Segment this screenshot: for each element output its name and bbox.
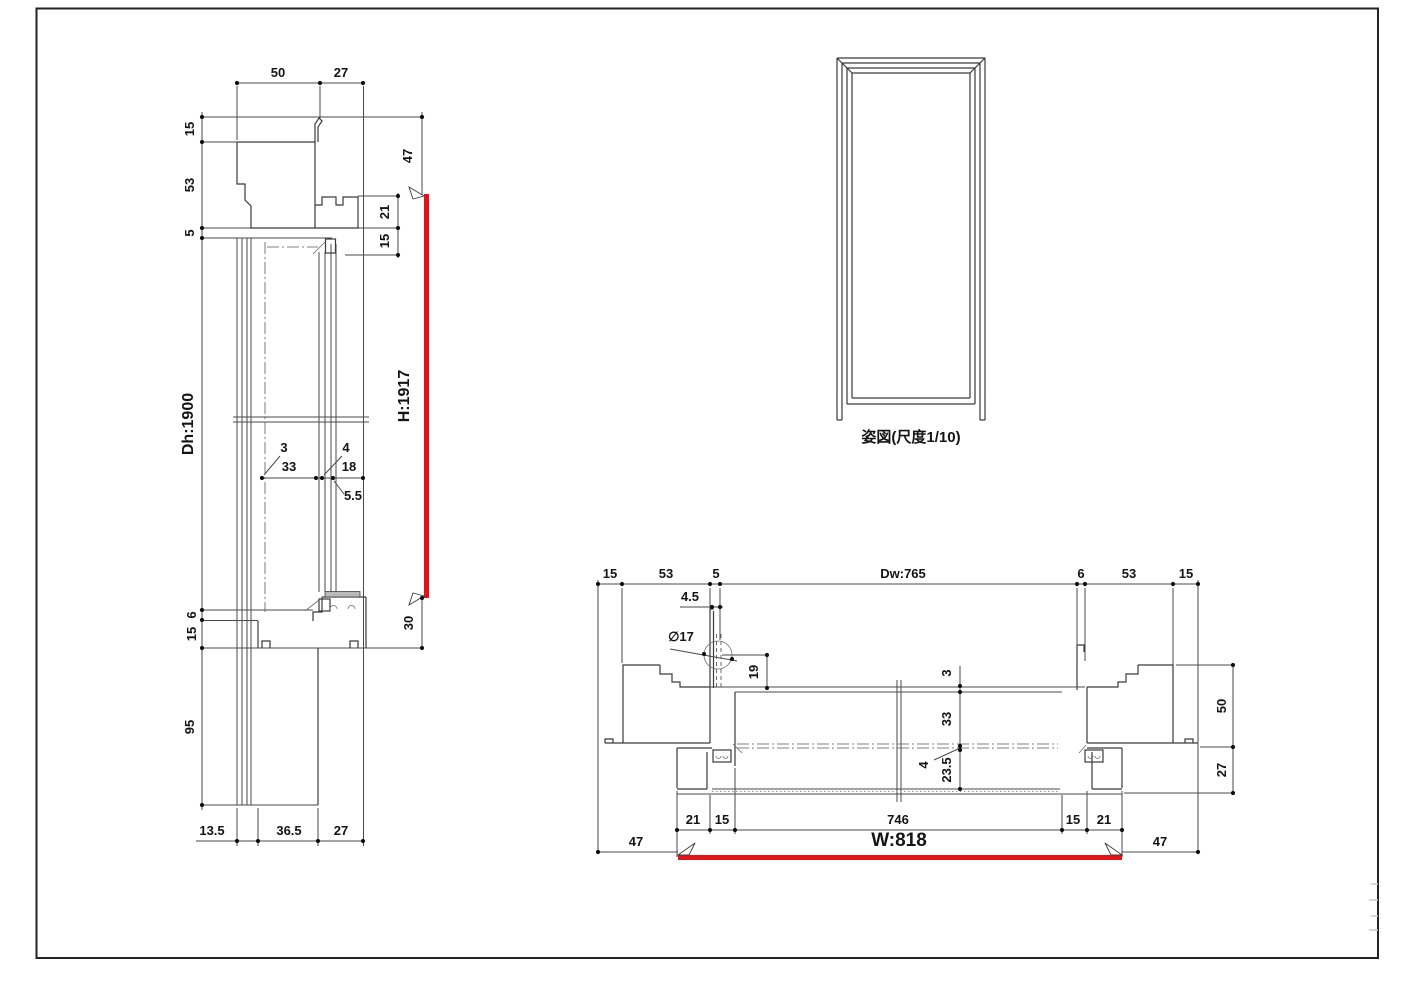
dim-47-right: 47: [1153, 834, 1167, 849]
dim-3: 3: [939, 669, 954, 676]
hs-clip-details: [716, 744, 1100, 759]
dim-21-bottom-right: 21: [1097, 812, 1111, 827]
dim-21-bottom-left: 21: [686, 812, 700, 827]
dim-13-5: 13.5: [199, 823, 224, 838]
dim-door-width: Dw:765: [880, 566, 926, 581]
dim-15-bottom-right: 15: [1066, 812, 1080, 827]
dim-15-right: 15: [1179, 566, 1193, 581]
edge-marks: [1369, 884, 1378, 930]
dim-6: 6: [184, 611, 199, 618]
dim-15-right: 15: [377, 234, 392, 248]
dim-15-top: 15: [182, 122, 197, 136]
dim-15-bottom: 15: [184, 627, 199, 641]
dim-746: 746: [887, 812, 909, 827]
vs-clip-details: [305, 242, 355, 611]
cad-drawing: 50 27 15 53 5 Dh:1900 6 15 95 47 21 15 H…: [0, 0, 1415, 1000]
dim-53-right: 53: [1122, 566, 1136, 581]
elevation-view: 姿図(尺度1/10): [837, 58, 985, 446]
horizontal-section-view: 15 53 5 4.5 Dw:765 6 53 15 ∅17 19 3 33 4…: [596, 566, 1235, 860]
dim-4: 4: [916, 761, 931, 769]
hs-door-leaf: [677, 680, 1122, 802]
dim-hinge-diameter: ∅17: [668, 629, 694, 644]
dim-50: 50: [1214, 699, 1229, 713]
dim-30: 30: [401, 616, 416, 630]
dim-33: 33: [282, 459, 296, 474]
hs-hinge-dashed: [717, 634, 722, 690]
dim-53-left: 53: [659, 566, 673, 581]
dim-door-height: Dh:1900: [180, 393, 197, 455]
vs-dimension-lines: [196, 83, 422, 846]
dim-4: 4: [342, 440, 350, 455]
dim-47-left: 47: [629, 834, 643, 849]
dim-4-5: 4.5: [681, 589, 699, 604]
dim-50: 50: [271, 65, 285, 80]
vs-seal-strip: [325, 592, 360, 598]
dim-27: 27: [1214, 763, 1229, 777]
dim-36-5: 36.5: [276, 823, 301, 838]
dim-95: 95: [182, 720, 197, 734]
dim-27: 27: [334, 65, 348, 80]
dim-53: 53: [182, 178, 197, 192]
dim-23-5: 23.5: [939, 757, 954, 782]
elevation-frame: [837, 58, 985, 420]
dim-total-height: H:1917: [396, 370, 413, 423]
dim-19: 19: [746, 665, 761, 679]
dim-15-bottom-left: 15: [715, 812, 729, 827]
width-highlight-line: [678, 855, 1122, 860]
height-highlight-line: [424, 194, 429, 598]
vs-wall-lines: [233, 238, 369, 805]
vertical-section-view: 50 27 15 53 5 Dh:1900 6 15 95 47 21 15 H…: [180, 65, 429, 846]
vs-centerline: [265, 242, 318, 612]
dim-21: 21: [377, 205, 392, 219]
dim-47: 47: [400, 149, 415, 163]
dim-6: 6: [1077, 566, 1084, 581]
dim-5: 5: [712, 566, 719, 581]
vs-dimension-dots: [200, 81, 424, 843]
dim-27-bottom: 27: [334, 823, 348, 838]
dim-18: 18: [342, 459, 356, 474]
drawing-page: 50 27 15 53 5 Dh:1900 6 15 95 47 21 15 H…: [0, 0, 1415, 1000]
vs-sill-clip: [319, 599, 330, 611]
dim-5: 5: [182, 229, 197, 236]
dim-15-left: 15: [603, 566, 617, 581]
dim-3: 3: [280, 440, 287, 455]
dim-5-5: 5.5: [344, 488, 362, 503]
dim-total-width: W:818: [871, 830, 927, 851]
page-border: [37, 9, 1379, 959]
elevation-caption: 姿図(尺度1/10): [861, 428, 960, 446]
dim-33: 33: [939, 712, 954, 726]
